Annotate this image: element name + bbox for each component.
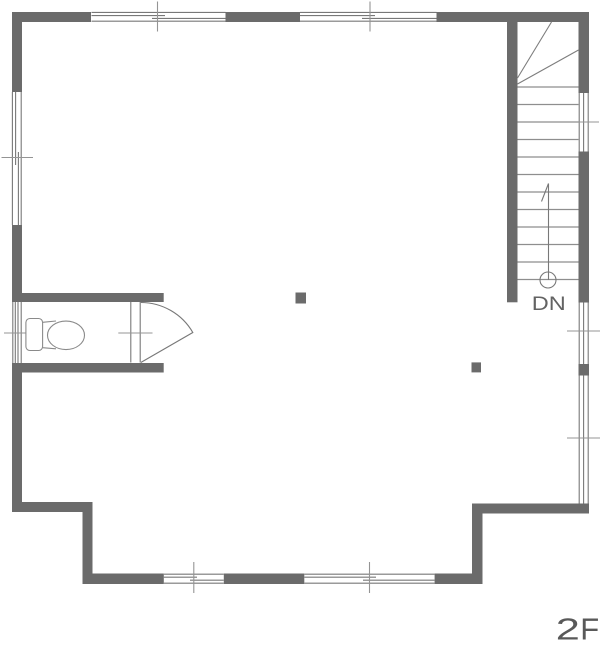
svg-text:2: 2: [556, 612, 580, 640]
svg-text:DN: DN: [532, 294, 566, 315]
svg-text:F: F: [580, 612, 599, 641]
